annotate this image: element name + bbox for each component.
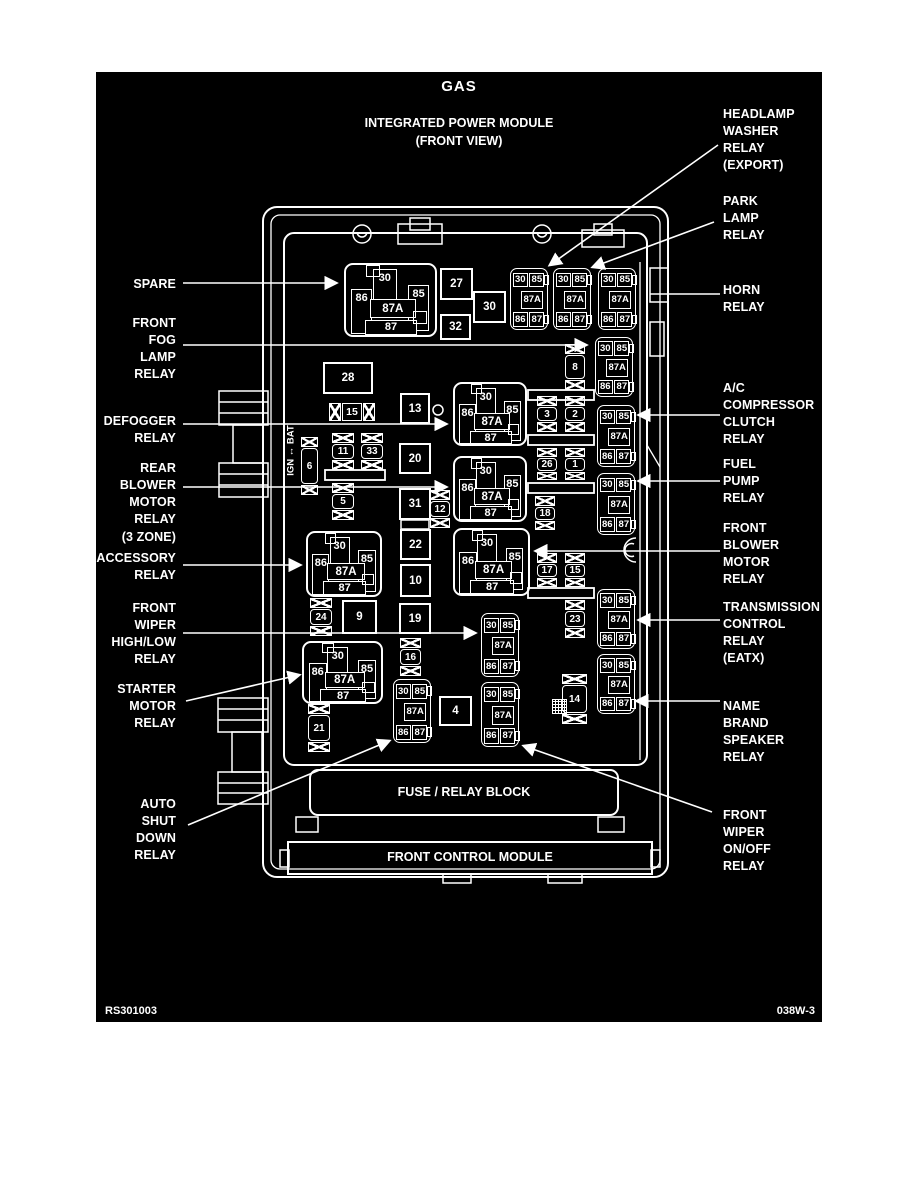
- relay-pad-p85: 85: [572, 273, 587, 288]
- pad-notch: [366, 265, 380, 277]
- pad-notch: [515, 689, 520, 699]
- fuse-label: 5: [332, 494, 354, 509]
- relay-name-brand-speaker: 30858687A87: [597, 654, 635, 714]
- pad-notch: [472, 530, 483, 541]
- relay-pad-p87a: 87A: [474, 413, 510, 429]
- fuse-5: 5: [332, 483, 354, 520]
- relay-pad-p87: 87: [412, 725, 427, 740]
- fuse-label: 15: [565, 564, 585, 577]
- relay-pad-p86: 86: [556, 312, 571, 327]
- pad-notch: [629, 382, 634, 392]
- fuse-13: 13: [400, 393, 430, 424]
- relay-pad-p87a: 87A: [606, 359, 628, 376]
- relay-pad-p87: 87: [617, 312, 632, 327]
- relay-ac-clutch: 30858687A87: [597, 405, 635, 467]
- fuse-label: 12: [430, 501, 450, 517]
- relay-front-wiper-high-low: 30858687A87: [481, 613, 519, 677]
- fuse-label: 16: [400, 649, 421, 665]
- relay-fuel-pump: 30858687A87: [597, 473, 635, 535]
- fuse-label: 15: [342, 403, 362, 421]
- diagram-canvas: GAS INTEGRATED POWER MODULE (FRONT VIEW): [96, 72, 822, 1022]
- relay-pad-p85: 85: [616, 593, 631, 607]
- relay-pad-p87a: 87A: [492, 637, 514, 655]
- relay-pad-p87a: 87A: [475, 561, 513, 578]
- callout-front-fog-lamp-relay: FRONT FOG LAMP RELAY: [132, 315, 176, 384]
- pad-notch: [629, 344, 634, 354]
- fuse-33: 33: [361, 433, 383, 470]
- relay-footprint-front-blower: 30858687A87: [453, 528, 530, 596]
- callout-accessory-relay: ACCESSORY RELAY: [96, 550, 176, 584]
- fuse-label: 24: [310, 609, 332, 625]
- pad-notch: [515, 731, 520, 741]
- relay-front-wiper-on-off: 30858687A87: [481, 682, 519, 747]
- pad-notch: [587, 315, 592, 325]
- fuse-26: 26: [537, 448, 557, 480]
- fuse-label: 2: [565, 407, 585, 421]
- callout-headlamp-washer-relay: HEADLAMP WASHER RELAY (EXPORT): [723, 106, 795, 175]
- fuse-label: 6: [301, 448, 318, 484]
- relay-pad-p87: 87: [616, 697, 631, 711]
- fuse-30: 30: [473, 291, 506, 323]
- relay-footprint-rear-blower: 30858687A87: [453, 456, 527, 522]
- manual-page: GAS INTEGRATED POWER MODULE (FRONT VIEW): [0, 0, 918, 1188]
- relay-pad-p86: 86: [484, 728, 499, 743]
- relay-front-fog-lamp: 30858687A87: [595, 337, 633, 397]
- fuse-label: 8: [565, 355, 585, 379]
- relay-pad-p87: 87: [365, 320, 418, 335]
- pad-notch: [631, 452, 636, 462]
- pad-notch: [471, 384, 482, 394]
- relay-pad-p87a: 87A: [608, 428, 630, 446]
- ign-bat-label: IGN ↔ BAT: [286, 419, 297, 483]
- relay-pad-p87a: 87A: [608, 496, 630, 514]
- fuse-1: 1: [565, 448, 585, 480]
- relay-pad-p85: 85: [614, 341, 629, 355]
- fuse-relay-block-label: FUSE / RELAY BLOCK: [310, 785, 618, 799]
- front-control-module-label: FRONT CONTROL MODULE: [288, 850, 652, 864]
- title-gas: GAS: [96, 78, 822, 95]
- relay-footprint-defogger: 30858687A87: [453, 382, 527, 446]
- fuse-15-horizontal: 15: [329, 403, 375, 421]
- fuse-label: 17: [537, 564, 557, 577]
- relay-headlamp-washer: 30858687A87: [510, 268, 548, 330]
- relay-pad-p87a: 87A: [608, 611, 630, 628]
- relay-pad-p87: 87: [616, 517, 631, 532]
- relay-pad-p87a: 87A: [327, 563, 364, 580]
- fuse-16: 16: [400, 638, 421, 676]
- relay-pad-p86: 86: [600, 632, 615, 646]
- pad-notch: [587, 275, 592, 285]
- pad-notch: [631, 699, 636, 709]
- pad-notch: [544, 275, 549, 285]
- fuse-label: 23: [565, 611, 585, 627]
- relay-pad-p85: 85: [616, 478, 631, 493]
- relay-pad-p30: 30: [600, 410, 615, 425]
- relay-pad-p87a: 87A: [404, 703, 426, 721]
- relay-pad-p87a: 87A: [564, 291, 586, 309]
- relay-pad-p85: 85: [617, 273, 632, 288]
- footer-code-left: RS301003: [105, 1005, 157, 1017]
- callout-name-brand-speaker-relay: NAME BRAND SPEAKER RELAY: [723, 698, 784, 767]
- fuse-label: 11: [332, 444, 354, 459]
- fuse-31: 31: [399, 488, 431, 520]
- pad-notch: [544, 315, 549, 325]
- callout-horn-relay: HORN RELAY: [723, 282, 765, 316]
- fuse-18: 18: [535, 496, 555, 530]
- relay-pad-p30: 30: [556, 273, 571, 288]
- pad-notch: [471, 458, 482, 469]
- fuse-21: 21: [308, 704, 330, 752]
- fuse-3: 3: [537, 396, 557, 432]
- fuse-label: 3: [537, 407, 557, 421]
- callout-front-wiper-on-off-relay: FRONT WIPER ON/OFF RELAY: [723, 807, 771, 876]
- relay-pad-p30: 30: [600, 593, 615, 607]
- fuse-label: 26: [537, 458, 557, 471]
- fuse-label: 1: [565, 458, 585, 471]
- relay-pad-p85: 85: [616, 410, 631, 425]
- relay-pad-p85: 85: [500, 687, 515, 702]
- fuse-9: 9: [342, 600, 377, 634]
- relay-pad-p30: 30: [513, 273, 528, 288]
- relay-pad-p30: 30: [396, 684, 411, 699]
- relay-pad-p30: 30: [601, 273, 616, 288]
- relay-pad-p87: 87: [470, 580, 514, 594]
- relay-pad-p87: 87: [470, 506, 512, 520]
- relay-auto-shut-down: 30858687A87: [393, 679, 431, 743]
- side-connectors: [218, 391, 268, 804]
- callout-ac-compressor-clutch-relay: A/C COMPRESSOR CLUTCH RELAY: [723, 380, 814, 449]
- relay-transmission-control: 30858687A87: [597, 589, 635, 649]
- fuse-11: 11: [332, 433, 354, 470]
- relay-pad-p86: 86: [598, 380, 613, 394]
- relay-pad-p86: 86: [600, 697, 615, 711]
- pad-notch: [515, 661, 520, 671]
- relay-pad-p86: 86: [484, 659, 499, 674]
- fuse-17: 17: [537, 553, 557, 587]
- relay-footprint-spare: 30858687A87: [344, 263, 437, 337]
- relay-pad-p85: 85: [616, 658, 631, 672]
- fuse-label: 21: [308, 715, 330, 741]
- pad-notch: [510, 572, 522, 584]
- relay-pad-p87a: 87A: [370, 299, 416, 318]
- callout-fuel-pump-relay: FUEL PUMP RELAY: [723, 456, 765, 507]
- relay-pad-p87: 87: [616, 632, 631, 646]
- pad-notch: [632, 315, 637, 325]
- pad-notch: [427, 686, 432, 696]
- relay-pad-p87: 87: [572, 312, 587, 327]
- relay-pad-p85: 85: [500, 618, 515, 633]
- callout-defogger-relay: DEFOGGER RELAY: [104, 413, 176, 447]
- relay-pad-p30: 30: [600, 478, 615, 493]
- relay-pad-p30: 30: [484, 618, 499, 633]
- relay-pad-p87: 87: [529, 312, 544, 327]
- pad-notch: [427, 727, 432, 737]
- relay-pad-p87a: 87A: [474, 488, 510, 505]
- fuse-19: 19: [399, 603, 431, 634]
- fuse-4: 4: [439, 696, 472, 726]
- fuse-23: 23: [565, 600, 585, 638]
- fuse-22: 22: [400, 529, 431, 560]
- pad-notch: [631, 520, 636, 530]
- relay-pad-p87a: 87A: [492, 706, 514, 724]
- fuse-12: 12: [430, 490, 450, 528]
- fuse-20: 20: [399, 443, 431, 474]
- fuse-2: 2: [565, 396, 585, 432]
- pad-notch: [325, 533, 336, 544]
- relay-pad-p87: 87: [320, 689, 366, 702]
- grid-icon: [552, 699, 567, 714]
- relay-pad-p87a: 87A: [325, 672, 365, 688]
- relay-pad-p87a: 87A: [609, 291, 631, 309]
- pad-notch: [515, 620, 520, 630]
- fuse-label: 18: [535, 507, 555, 520]
- pad-notch: [362, 574, 374, 585]
- relay-footprint-starter: 30858687A87: [302, 641, 383, 704]
- callout-starter-motor-relay: STARTER MOTOR RELAY: [117, 681, 176, 732]
- relay-pad-p87: 87: [616, 449, 631, 464]
- relay-pad-p86: 86: [601, 312, 616, 327]
- pad-notch: [322, 643, 334, 653]
- fuse-27: 27: [440, 268, 473, 300]
- callout-front-blower-motor-relay: FRONT BLOWER MOTOR RELAY: [723, 520, 779, 589]
- title-integrated-power-module: INTEGRATED POWER MODULE (FRONT VIEW): [96, 115, 822, 150]
- callout-auto-shut-down-relay: AUTO SHUT DOWN RELAY: [134, 796, 176, 865]
- fuse-24: 24: [310, 598, 332, 636]
- pad-notch: [631, 480, 636, 490]
- pad-notch: [508, 499, 520, 510]
- pad-notch: [631, 596, 636, 606]
- pad-notch: [631, 634, 636, 644]
- relay-pad-p87a: 87A: [608, 676, 630, 693]
- fuse-label: 33: [361, 444, 383, 459]
- fuse-32: 32: [440, 314, 471, 340]
- relay-pad-p30: 30: [600, 658, 615, 672]
- fuse-8: 8: [565, 344, 585, 390]
- callout-transmission-control-relay: TRANSMISSION CONTROL RELAY (EATX): [723, 599, 820, 668]
- relay-park-lamp: 30858687A87: [553, 268, 591, 330]
- relay-pad-p85: 85: [529, 273, 544, 288]
- pad-notch: [413, 311, 427, 324]
- footer-code-right: 038W-3: [777, 1005, 815, 1017]
- relay-footprint-accessory: 30858687A87: [306, 531, 382, 597]
- fuse-6: 6: [301, 437, 318, 495]
- relay-pad-p85: 85: [412, 684, 427, 699]
- pad-notch: [631, 412, 636, 422]
- relay-pad-p86: 86: [600, 517, 615, 532]
- relay-pad-p87: 87: [500, 728, 515, 743]
- callout-rear-blower-motor-relay: REAR BLOWER MOTOR RELAY (3 ZONE): [120, 460, 176, 546]
- relay-pad-p87a: 87A: [521, 291, 543, 309]
- relay-pad-p86: 86: [396, 725, 411, 740]
- relay-pad-p86: 86: [600, 449, 615, 464]
- relay-horn: 30858687A87: [598, 268, 636, 330]
- callout-front-wiper-high-low-relay: FRONT WIPER HIGH/LOW RELAY: [111, 600, 176, 669]
- relay-pad-p30: 30: [484, 687, 499, 702]
- callout-park-lamp-relay: PARK LAMP RELAY: [723, 193, 765, 244]
- pad-notch: [631, 661, 636, 671]
- relay-pad-p87: 87: [470, 431, 512, 444]
- relay-pad-p87: 87: [323, 581, 366, 595]
- fuse-28: 28: [323, 362, 373, 394]
- pad-notch: [508, 424, 520, 435]
- relay-pad-p87: 87: [614, 380, 629, 394]
- relay-pad-p87: 87: [500, 659, 515, 674]
- relay-pad-p30: 30: [598, 341, 613, 355]
- fuse-10: 10: [400, 564, 431, 597]
- callout-spare: SPARE: [133, 276, 176, 293]
- pad-notch: [632, 275, 637, 285]
- pad-notch: [362, 682, 375, 693]
- fuse-15: 15: [565, 553, 585, 587]
- relay-pad-p86: 86: [513, 312, 528, 327]
